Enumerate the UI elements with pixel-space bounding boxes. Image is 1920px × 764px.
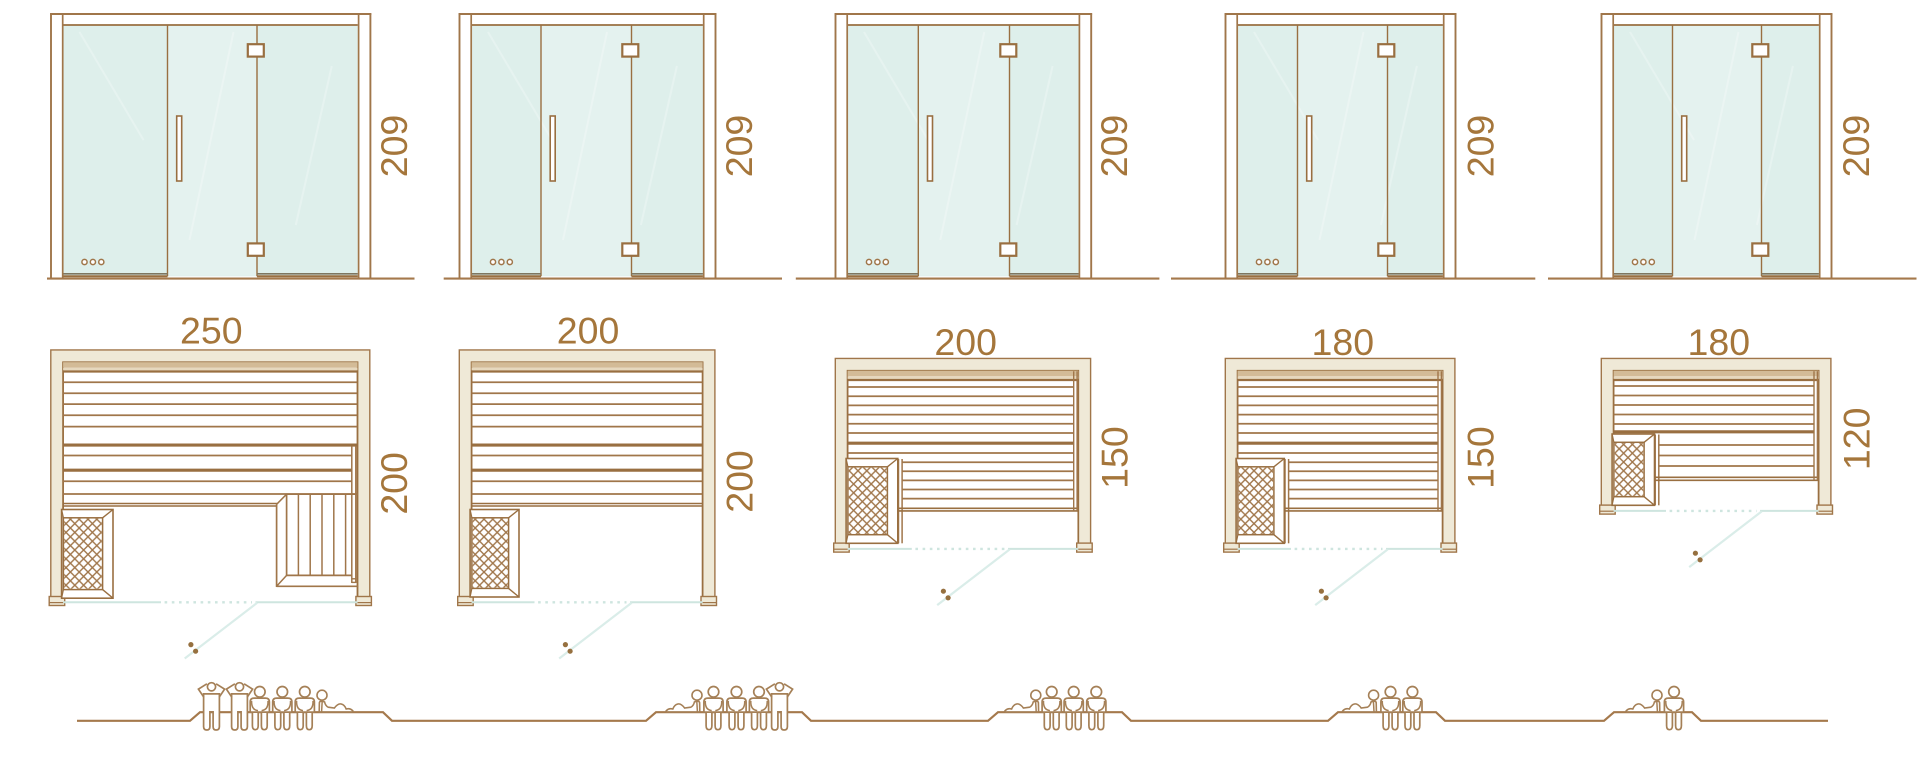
svg-text:209: 209 [1093, 115, 1135, 178]
svg-text:209: 209 [1835, 115, 1877, 178]
svg-text:250: 250 [180, 310, 243, 352]
svg-text:200: 200 [934, 321, 997, 363]
svg-text:209: 209 [1459, 115, 1501, 178]
svg-text:200: 200 [718, 450, 760, 513]
svg-text:209: 209 [373, 115, 415, 178]
svg-text:120: 120 [1835, 408, 1877, 471]
svg-text:200: 200 [373, 452, 415, 515]
svg-text:209: 209 [718, 115, 760, 178]
svg-text:180: 180 [1688, 321, 1751, 363]
svg-text:150: 150 [1460, 426, 1502, 489]
svg-text:180: 180 [1312, 321, 1375, 363]
svg-text:200: 200 [557, 310, 620, 352]
svg-text:150: 150 [1094, 426, 1136, 489]
